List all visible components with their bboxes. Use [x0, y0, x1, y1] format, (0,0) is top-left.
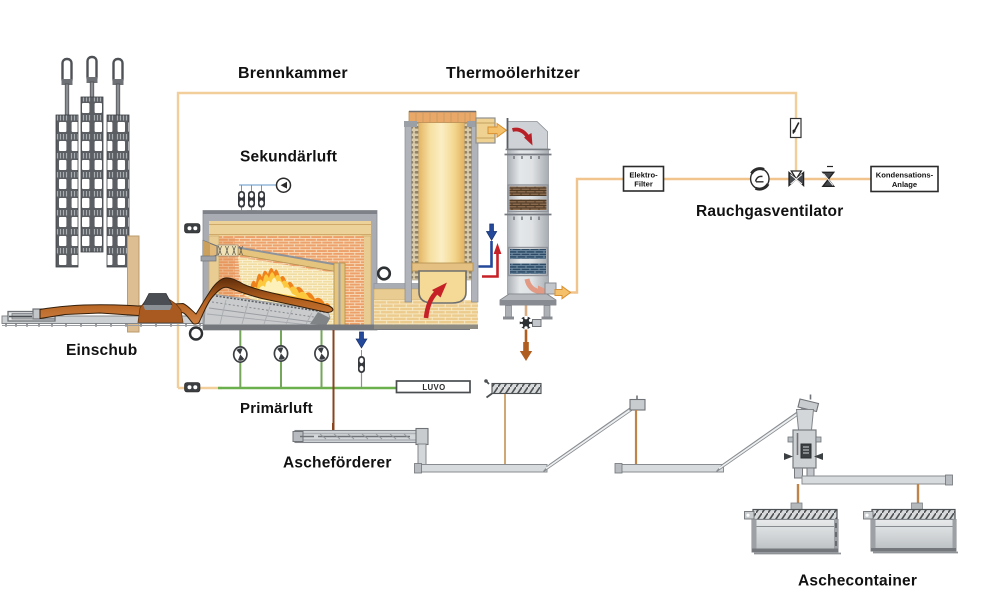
svg-text:Elektro-: Elektro- — [629, 171, 658, 180]
svg-text:Rauchgasventilator: Rauchgasventilator — [696, 203, 843, 220]
svg-text:Anlage: Anlage — [892, 180, 917, 189]
svg-text:Kondensations-: Kondensations- — [876, 171, 934, 180]
svg-text:Sekundärluft: Sekundärluft — [240, 149, 337, 166]
svg-text:Einschub: Einschub — [66, 342, 137, 359]
svg-text:Brennkammer: Brennkammer — [238, 65, 348, 82]
svg-text:Thermoölerhitzer: Thermoölerhitzer — [446, 65, 580, 82]
svg-text:Filter: Filter — [634, 180, 653, 189]
svg-text:Primärluft: Primärluft — [240, 400, 313, 417]
svg-text:Ascheförderer: Ascheförderer — [283, 455, 392, 472]
svg-text:Aschecontainer: Aschecontainer — [798, 573, 917, 590]
svg-text:LUVO: LUVO — [422, 383, 445, 392]
